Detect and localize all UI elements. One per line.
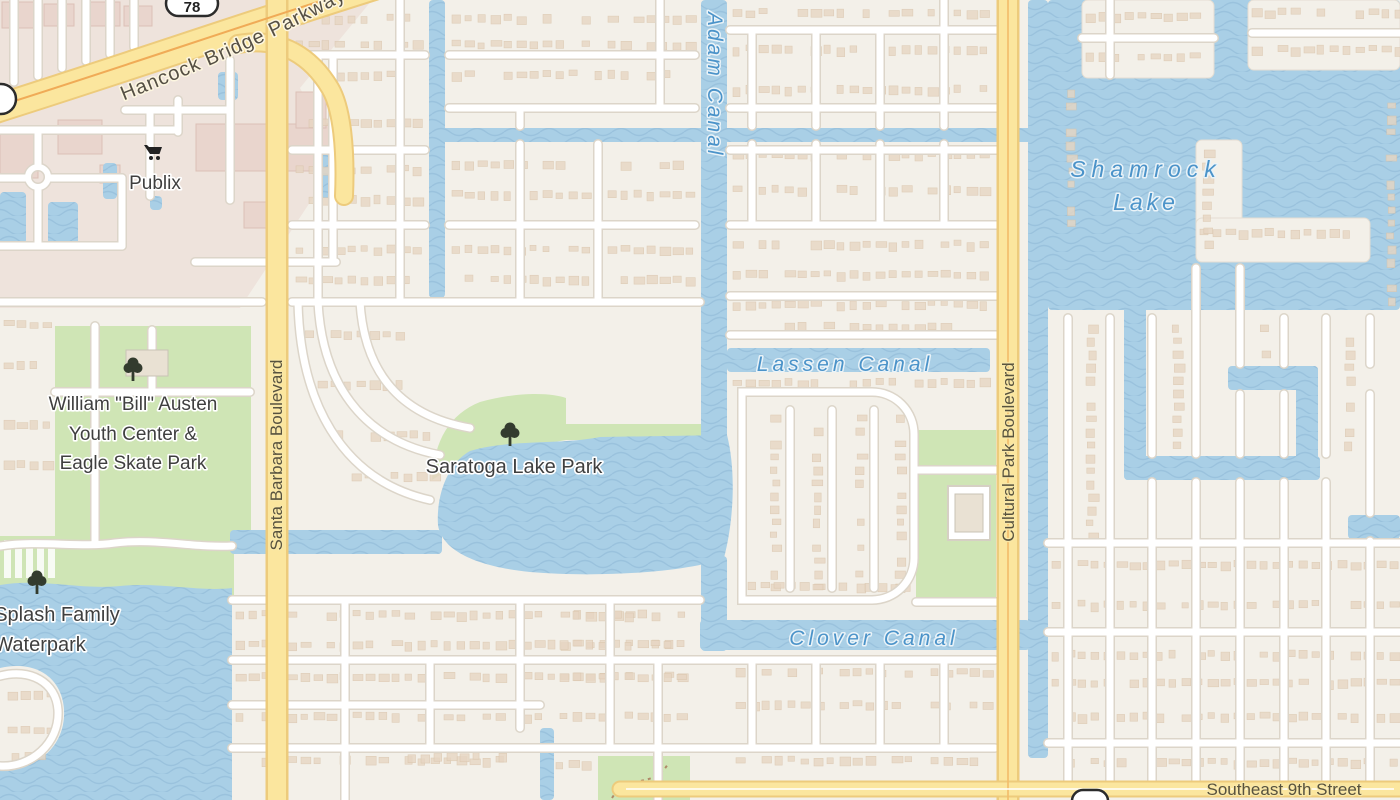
highway-shield-icon — [1072, 790, 1108, 800]
adam-canal-label: Adam Canal — [703, 10, 726, 158]
splash-waterpark-label-line2: Waterpark — [0, 634, 87, 656]
youth-center-label-line1: William "Bill" Austen — [49, 394, 218, 415]
clover-canal-label: Clover Canal — [789, 627, 958, 650]
lassen-canal-label: Lassen Canal — [757, 353, 933, 376]
cultural-park-blvd-label: Cultural Park Boulevard — [999, 362, 1018, 542]
youth-center-label-line2: Youth Center & — [69, 424, 197, 445]
se-9th-street-label: Southeast 9th Street — [1207, 780, 1362, 799]
publix-label: Publix — [129, 173, 181, 194]
route-78-shield-label: 78 — [184, 0, 201, 16]
map-canvas[interactable]: Publix William "Bill" Austen Youth Cente… — [0, 0, 1400, 800]
splash-waterpark-label-line1: Splash Family — [0, 604, 120, 626]
shamrock-lake-label-line1: Shamrock — [1070, 156, 1222, 182]
map-surface[interactable]: Publix William "Bill" Austen Youth Cente… — [0, 0, 1400, 800]
saratoga-park-label: Saratoga Lake Park — [426, 456, 604, 478]
youth-center-label-line3: Eagle Skate Park — [60, 453, 207, 474]
santa-barbara-blvd-label: Santa Barbara Boulevard — [267, 360, 286, 551]
shamrock-lake-label-line2: Lake — [1113, 189, 1179, 215]
